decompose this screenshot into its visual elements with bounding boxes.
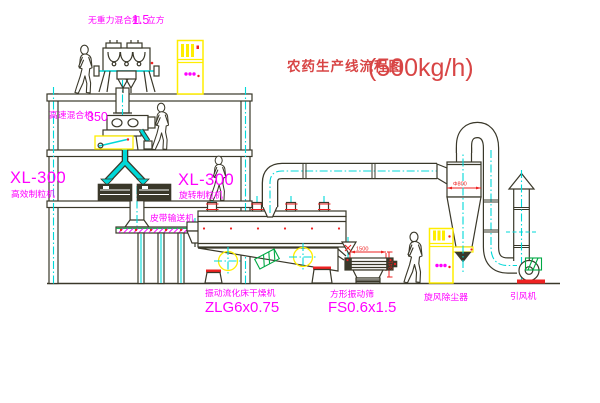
control-cabinet-top [178,41,204,95]
label-belt-conveyor: 皮带输送机 [150,212,194,223]
fan-base [517,280,545,284]
page-title-capacity: (500kg/h) [368,54,474,82]
screen-base [353,270,383,278]
worker-ground [404,232,422,283]
label-granulator-right: 旋转制粒机 [179,189,223,200]
label-granulator-left-model: XL-300 [10,169,66,187]
cad-drawing-page: 农药生产线流程图 (500kg/h) 无重力混合机 1.5 立方 高速混合机 3… [0,0,600,403]
label-granulator-right-model: XL-300 [178,171,234,189]
label-gravity-mixer-unit: 立方 [147,14,165,25]
dim-cyclone-inlet: Φ800 [453,182,467,188]
worker-roof [75,45,92,93]
label-granulator-left: 高效制粒机 [11,188,55,199]
label-fan: 引风机 [510,290,537,301]
label-cyclone: 旋风除尘器 [424,291,468,302]
dim-screen-height: 341 [389,261,395,270]
floor2-slab [47,150,252,157]
label-screen-model: FS0.6x1.5 [328,299,396,316]
floor3-slab [47,201,252,208]
cyclone-inlet-taper [437,164,447,184]
label-dryer: 振动流化床干燥机 [205,287,276,298]
vibrating-screen [342,237,397,283]
dim-screen-length: 1500 [356,247,368,253]
label-dryer-model: ZLG6x0.75 [205,299,279,316]
control-cabinet-ground [430,229,454,284]
cyclone-body [447,162,481,197]
gravity-free-mixer [94,40,159,93]
label-high-speed-mixer-size: 350 [87,110,108,124]
label-screen: 方形振动筛 [330,288,374,299]
pesticide-line-diagram: 农药生产线流程图 (500kg/h) 无重力混合机 1.5 立方 高速混合机 3… [0,0,600,403]
roof-slab [47,94,252,101]
